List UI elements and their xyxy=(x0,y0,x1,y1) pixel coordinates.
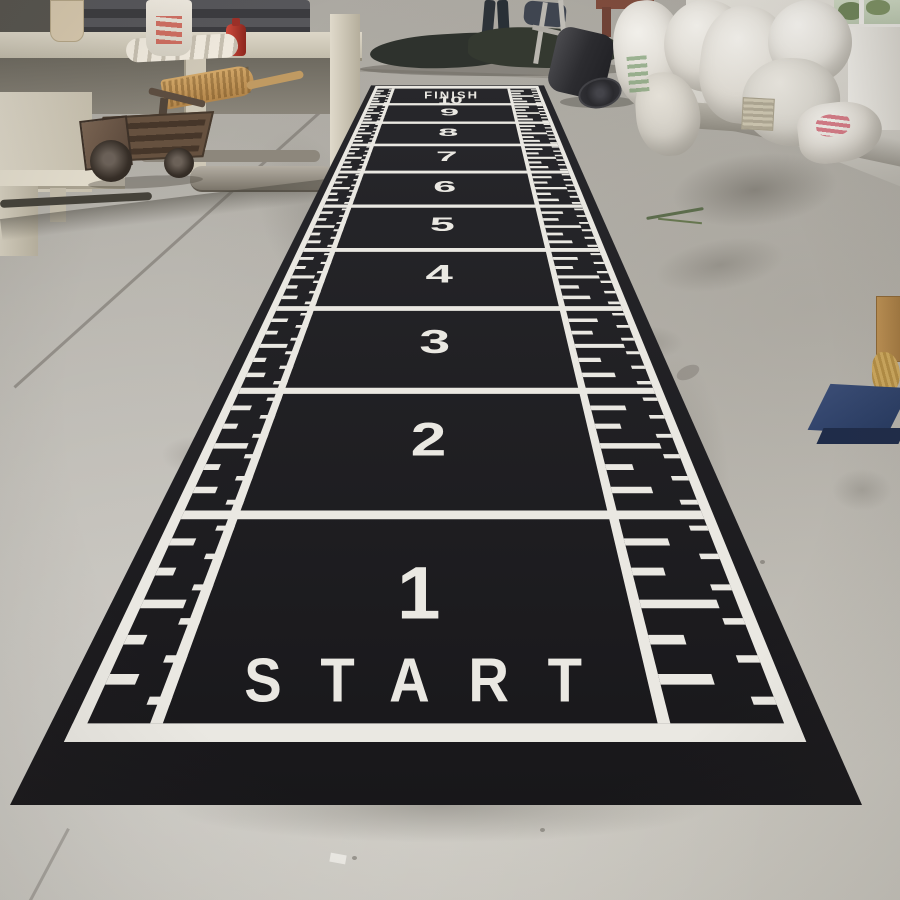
mat-ruler-nub xyxy=(353,179,362,181)
warehouse-scene: 123456789START10FINISH xyxy=(0,0,900,900)
mat-ruler-nub xyxy=(631,366,646,369)
mat-ruler-tick xyxy=(517,115,528,117)
mat-ruler-nub xyxy=(689,526,709,531)
mat-ruler-nub xyxy=(546,131,553,132)
mat-section-line xyxy=(323,204,582,207)
mat-ruler-tick xyxy=(334,181,342,183)
mat-number: 2 xyxy=(411,413,447,466)
mat-ruler-nub xyxy=(388,92,394,93)
mat-ruler-nub xyxy=(361,159,369,161)
mat-ruler-nub xyxy=(621,338,635,341)
mat-ruler-nub xyxy=(204,554,225,559)
mat-ruler-tick xyxy=(363,118,372,120)
mat-ruler-tick xyxy=(512,98,522,100)
mat-ruler-tick xyxy=(639,600,719,609)
mat-ruler-tick xyxy=(360,125,369,127)
mat-ruler-nub xyxy=(563,179,572,181)
mat-ruler-nub xyxy=(656,434,673,438)
mat-ruler-nub xyxy=(266,398,282,401)
mat-ruler-nub xyxy=(364,150,372,151)
mat-ruler-nub xyxy=(244,454,262,458)
mat-ruler-nub xyxy=(538,108,544,109)
mat-ruler-tick xyxy=(299,257,314,260)
mat-ruler-tick xyxy=(203,464,221,470)
mat-ruler-nub xyxy=(252,434,269,438)
mat-ruler-nub xyxy=(537,105,543,106)
mat-ruler-nub xyxy=(541,117,548,118)
mat-ruler-nub xyxy=(533,94,539,95)
mat-ruler-tick xyxy=(105,674,139,685)
mat-ruler-tick xyxy=(600,443,662,448)
mat-ruler-nub xyxy=(147,697,173,705)
mat-ruler-tick xyxy=(553,257,578,260)
mat-ruler-nub xyxy=(722,618,745,625)
mat-ruler-nub xyxy=(333,229,343,231)
mat-ruler-nub xyxy=(549,138,556,139)
mat-ruler-nub xyxy=(374,127,381,128)
mat-ruler-nub xyxy=(389,89,395,90)
mat-number: 5 xyxy=(430,214,455,236)
mat-ruler-nub xyxy=(531,89,537,90)
mat-ruler-tick xyxy=(358,129,365,131)
mat-start-label: START xyxy=(244,646,620,715)
mat-ruler-nub xyxy=(565,184,574,186)
mat-number: 3 xyxy=(419,323,450,360)
mat-ruler-tick xyxy=(343,161,351,163)
mat-ruler-tick xyxy=(346,157,363,159)
mat-ruler-nub xyxy=(327,245,338,247)
mat-ruler-nub xyxy=(593,262,604,264)
mat-ruler-tick xyxy=(582,373,616,378)
mat-ruler-tick xyxy=(595,424,622,429)
mat-ruler-tick xyxy=(295,266,306,269)
mat-ruler-nub xyxy=(545,127,552,128)
mat-ruler-tick xyxy=(590,405,626,410)
mat-ruler-tick xyxy=(350,148,360,150)
mat-ruler-nub xyxy=(384,102,390,103)
mat-section-line xyxy=(351,144,558,147)
mat-ruler-nub xyxy=(273,381,288,384)
mat-ruler-nub xyxy=(378,117,385,118)
mat-ruler-tick xyxy=(535,187,567,189)
mat-ruler-nub xyxy=(539,111,546,112)
mat-section-line xyxy=(339,171,569,174)
mat-ruler-nub xyxy=(295,325,308,328)
mat-ruler-nub xyxy=(346,196,355,198)
mat-ruler-nub xyxy=(259,415,275,419)
mat-ruler-nub xyxy=(600,281,612,283)
mat-ruler-tick xyxy=(140,600,187,609)
mat-ruler-tick xyxy=(314,225,335,228)
sprint-track-mat: 123456789START10FINISH xyxy=(0,0,900,900)
mat-ruler-tick xyxy=(545,225,582,228)
mat-section-line xyxy=(181,510,705,519)
mat-ruler-nub xyxy=(576,215,586,217)
mat-ruler-nub xyxy=(608,302,621,305)
mat-ruler-nub xyxy=(375,124,382,125)
mat-ruler-tick xyxy=(337,176,348,178)
mat-ruler-nub xyxy=(679,500,698,505)
mat-ruler-nub xyxy=(309,291,321,294)
mat-section-line xyxy=(276,306,623,311)
mat-ruler-tick xyxy=(571,331,593,335)
mat-ruler-nub xyxy=(572,202,581,204)
mat-ruler-nub xyxy=(710,584,732,590)
mat-ruler-nub xyxy=(626,351,640,354)
mat-ruler-nub xyxy=(604,291,616,294)
mat-ruler-tick xyxy=(355,136,362,138)
mat-ruler-nub xyxy=(313,281,325,283)
mat-ruler-nub xyxy=(550,142,558,144)
mat-ruler-tick xyxy=(521,132,547,134)
mat-ruler-nub xyxy=(540,114,547,115)
mat-ruler-tick xyxy=(555,266,574,269)
mat-ruler-nub xyxy=(584,237,594,239)
mat-ruler-tick xyxy=(367,109,373,111)
mat-ruler-tick xyxy=(369,106,378,108)
mat-ruler-nub xyxy=(547,134,554,135)
mat-ruler-nub xyxy=(235,476,253,480)
mat-ruler-tick xyxy=(231,405,252,410)
mat-number: 6 xyxy=(433,177,456,195)
mat-number: 4 xyxy=(425,261,453,289)
mat-ruler-tick xyxy=(253,358,267,362)
mat-ruler-tick xyxy=(538,199,559,201)
mat-ruler-tick xyxy=(546,233,563,236)
mat-ruler-nub xyxy=(560,169,568,171)
mat-ruler-nub xyxy=(385,99,391,100)
mat-ruler-nub xyxy=(163,655,188,662)
mat-ruler-nub xyxy=(357,169,365,171)
mat-ruler-nub xyxy=(376,120,383,121)
mat-ruler-tick xyxy=(374,95,387,97)
mat-ruler-nub xyxy=(561,174,569,176)
mat-ruler-tick xyxy=(578,358,601,362)
mat-ruler-tick xyxy=(543,218,559,221)
mat-ruler-tick xyxy=(329,193,338,195)
mat-ruler-tick xyxy=(605,464,634,470)
mat-ruler-nub xyxy=(381,108,387,109)
mat-ruler-tick xyxy=(271,318,289,322)
mat-ruler-tick xyxy=(259,344,288,348)
mat-ruler-nub xyxy=(351,184,360,186)
mat-ruler-nub xyxy=(590,253,601,255)
mat-ruler-nub xyxy=(532,92,538,93)
mat-ruler-tick xyxy=(511,90,525,92)
mat-ruler-nub xyxy=(279,366,294,369)
mat-ruler-tick xyxy=(246,373,266,378)
mat-start-line xyxy=(64,723,806,742)
mat-ruler-nub xyxy=(341,208,351,210)
mat-ruler-tick xyxy=(307,240,321,243)
mat-ruler-nub xyxy=(300,313,313,316)
mat-section-line xyxy=(303,248,600,252)
mat-ruler-tick xyxy=(169,538,197,545)
mat-ruler-tick xyxy=(528,161,541,163)
mat-finish-line xyxy=(374,86,539,89)
mat-ruler-tick xyxy=(515,109,526,111)
mat-ruler-tick xyxy=(658,674,715,685)
mat-ruler-tick xyxy=(562,296,590,300)
mat-ruler-tick xyxy=(155,568,176,576)
mat-ruler-tick xyxy=(286,285,298,288)
mat-ruler-nub xyxy=(579,222,589,224)
mat-ruler-tick xyxy=(213,443,249,448)
mat-ruler-tick xyxy=(348,152,356,154)
mat-ruler-tick xyxy=(575,344,625,348)
mat-ruler-nub xyxy=(317,271,329,273)
mat-ruler-nub xyxy=(324,253,335,255)
mat-ruler-nub xyxy=(597,271,609,273)
mat-ruler-tick xyxy=(515,106,530,108)
mat-ruler-tick xyxy=(519,125,535,127)
mat-ruler-tick xyxy=(526,152,539,154)
mat-ruler-tick xyxy=(353,140,363,142)
mat-ruler-tick xyxy=(560,285,580,288)
mat-ruler-nub xyxy=(372,131,379,132)
mat-ruler-tick xyxy=(536,193,551,195)
mat-number: 7 xyxy=(436,149,457,164)
mat-ruler-tick xyxy=(320,211,333,213)
mat-ruler-tick xyxy=(513,101,527,103)
mat-ruler-nub xyxy=(355,174,363,176)
mat-ruler-tick xyxy=(611,487,654,493)
mat-ruler-nub xyxy=(534,97,540,98)
mat-ruler-nub xyxy=(556,159,564,161)
mat-ruler-nub xyxy=(649,415,665,419)
mat-ruler-nub xyxy=(215,526,235,531)
mat-ruler-tick xyxy=(512,95,534,97)
mat-ruler-nub xyxy=(612,313,625,316)
mat-ruler-nub xyxy=(587,245,598,247)
mat-number: 9 xyxy=(440,107,459,118)
mat-ruler-tick xyxy=(371,101,379,103)
mat-ruler-tick xyxy=(193,487,218,493)
mat-ruler-nub xyxy=(642,398,658,401)
mat-ruler-nub xyxy=(663,454,681,458)
mat-ruler-tick xyxy=(365,115,372,117)
mat-ruler-nub xyxy=(330,237,340,239)
mat-ruler-tick xyxy=(265,331,278,335)
mat-ruler-tick xyxy=(291,275,315,278)
mat-ruler-tick xyxy=(376,90,384,92)
mat-ruler-nub xyxy=(387,94,393,95)
mat-section-line xyxy=(362,122,550,124)
mat-ruler-tick xyxy=(317,218,327,221)
mat-ruler-tick xyxy=(522,136,534,138)
mat-ruler-nub xyxy=(581,229,591,231)
mat-ruler-tick xyxy=(516,112,540,114)
mat-ruler-nub xyxy=(574,208,584,210)
mat-ruler-tick xyxy=(548,240,572,243)
mat-ruler-tick xyxy=(332,187,350,189)
mat-ruler-nub xyxy=(344,202,353,204)
mat-ruler-tick xyxy=(341,166,352,168)
mat-ruler-nub xyxy=(535,99,541,100)
mat-number: 8 xyxy=(438,126,458,139)
mat-ruler-nub xyxy=(382,105,388,106)
mat-finish-label: FINISH xyxy=(424,90,479,101)
mat-ruler-nub xyxy=(386,97,392,98)
mat-ruler-tick xyxy=(541,211,563,213)
mat-ruler-tick xyxy=(311,233,321,236)
mat-ruler-nub xyxy=(551,146,559,147)
mat-section-line xyxy=(238,388,655,394)
mat-ruler-nub xyxy=(616,325,629,328)
mat-ruler-nub xyxy=(553,150,561,151)
mat-number: 1 xyxy=(397,552,440,635)
mat-ruler-tick xyxy=(530,166,549,168)
mat-ruler-nub xyxy=(359,164,367,166)
mat-ruler-nub xyxy=(379,114,386,115)
mat-ruler-nub xyxy=(192,584,214,590)
mat-ruler-tick xyxy=(532,176,552,178)
mat-ruler-nub xyxy=(558,164,566,166)
mat-ruler-tick xyxy=(525,148,543,150)
mat-ruler-nub xyxy=(636,381,651,384)
mat-ruler-tick xyxy=(357,132,372,134)
mat-ruler-nub xyxy=(339,215,349,217)
mat-ruler-nub xyxy=(178,618,201,625)
mat-ruler-tick xyxy=(511,93,521,95)
mat-ruler-tick xyxy=(527,157,556,159)
mat-ruler-nub xyxy=(368,142,376,144)
mat-ruler-nub xyxy=(736,655,761,662)
mat-ruler-nub xyxy=(285,351,299,354)
mat-ruler-nub xyxy=(366,146,374,147)
mat-ruler-nub xyxy=(363,155,371,156)
mat-ruler-nub xyxy=(699,554,720,559)
mat-ruler-nub xyxy=(320,262,331,264)
mat-ruler-nub xyxy=(535,102,541,103)
mat-ruler-nub xyxy=(371,134,378,135)
mat-ruler-nub xyxy=(290,338,304,341)
mat-ruler-tick xyxy=(326,199,338,201)
mat-ruler-tick xyxy=(222,424,238,429)
mat-ruler-tick xyxy=(375,93,381,95)
mat-ruler-tick xyxy=(366,112,380,114)
mat-ruler-tick xyxy=(568,318,598,322)
mat-ruler-tick xyxy=(281,296,298,300)
mat-ruler-nub xyxy=(336,222,346,224)
mat-ruler-tick xyxy=(534,181,548,183)
mat-ruler-nub xyxy=(349,190,358,192)
mat-ruler-nub xyxy=(542,120,549,121)
mat-ruler-tick xyxy=(373,98,379,100)
mat-ruler-nub xyxy=(569,196,578,198)
mat-ruler-nub xyxy=(555,155,563,156)
mat-ruler-tick xyxy=(648,635,686,645)
mat-ruler-tick xyxy=(557,275,599,278)
mat-ruler-tick xyxy=(523,140,540,142)
mat-ruler-tick xyxy=(520,129,532,131)
mat-ruler-nub xyxy=(380,111,387,112)
mat-ruler-tick xyxy=(518,118,534,120)
mat-ruler-nub xyxy=(543,124,550,125)
mat-ruler-tick xyxy=(624,538,670,545)
mat-ruler-nub xyxy=(304,302,317,305)
mat-ruler-nub xyxy=(225,500,244,505)
mat-ruler-nub xyxy=(671,476,689,480)
mat-ruler-tick xyxy=(631,568,666,576)
mat-ruler-nub xyxy=(567,190,576,192)
mat-ruler-nub xyxy=(369,138,376,139)
mat-ruler-nub xyxy=(751,697,777,705)
